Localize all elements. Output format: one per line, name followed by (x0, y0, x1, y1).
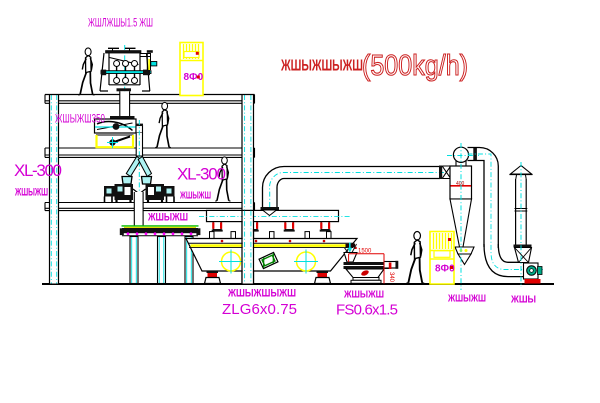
svg-text:XL-300: XL-300 (14, 161, 62, 180)
svg-text:340: 340 (388, 272, 394, 283)
svg-text:ZLG6x0.75: ZLG6x0.75 (222, 301, 297, 318)
svg-text:FS0.6x1.5: FS0.6x1.5 (336, 302, 398, 319)
svg-text:1500: 1500 (358, 249, 372, 255)
svg-text:ЖШЫЖШЫЖШ: ЖШЫЖШЫЖШ (280, 58, 363, 75)
svg-text:ЖШЫЖШ350: ЖШЫЖШ350 (55, 114, 105, 126)
svg-text:ЖШЫ: ЖШЫ (510, 294, 536, 306)
svg-text:ЖШЛЖШЫ1.5 ЖШ: ЖШЛЖШЫ1.5 ЖШ (88, 16, 153, 30)
svg-text:ЖШЫЖШ: ЖШЫЖШ (343, 289, 384, 301)
svg-text:ЖШЫЖШ: ЖШЫЖШ (147, 212, 188, 224)
svg-text:XL-300: XL-300 (177, 165, 226, 184)
svg-text:400: 400 (456, 181, 465, 187)
svg-text:(500kg/h): (500kg/h) (362, 50, 468, 82)
svg-text:8Ф0: 8Ф0 (184, 72, 204, 83)
svg-text:ЖШЫЖШ: ЖШЫЖШ (179, 190, 211, 202)
svg-text:ЖШЫЖШЫЖШ: ЖШЫЖШЫЖШ (227, 288, 296, 300)
svg-text:ЖШЫЖШ: ЖШЫЖШ (447, 294, 486, 305)
svg-text:ЖШЫЖШ: ЖШЫЖШ (14, 187, 48, 199)
